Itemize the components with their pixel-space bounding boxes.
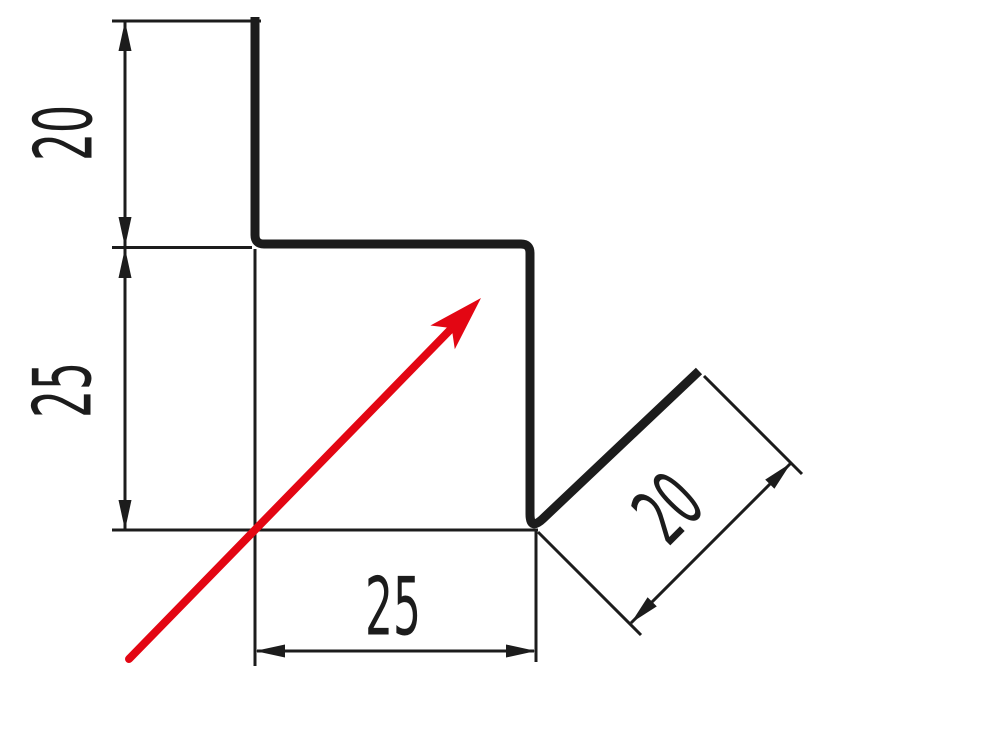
drawing-canvas: 20 25 25 — [0, 0, 992, 746]
dimension-label-top-left: 20 — [19, 105, 112, 161]
dimension-label-left: 25 — [18, 362, 111, 418]
profile-drawing-svg: 20 25 25 — [0, 0, 992, 746]
dimension-label-bottom: 25 — [365, 562, 421, 655]
